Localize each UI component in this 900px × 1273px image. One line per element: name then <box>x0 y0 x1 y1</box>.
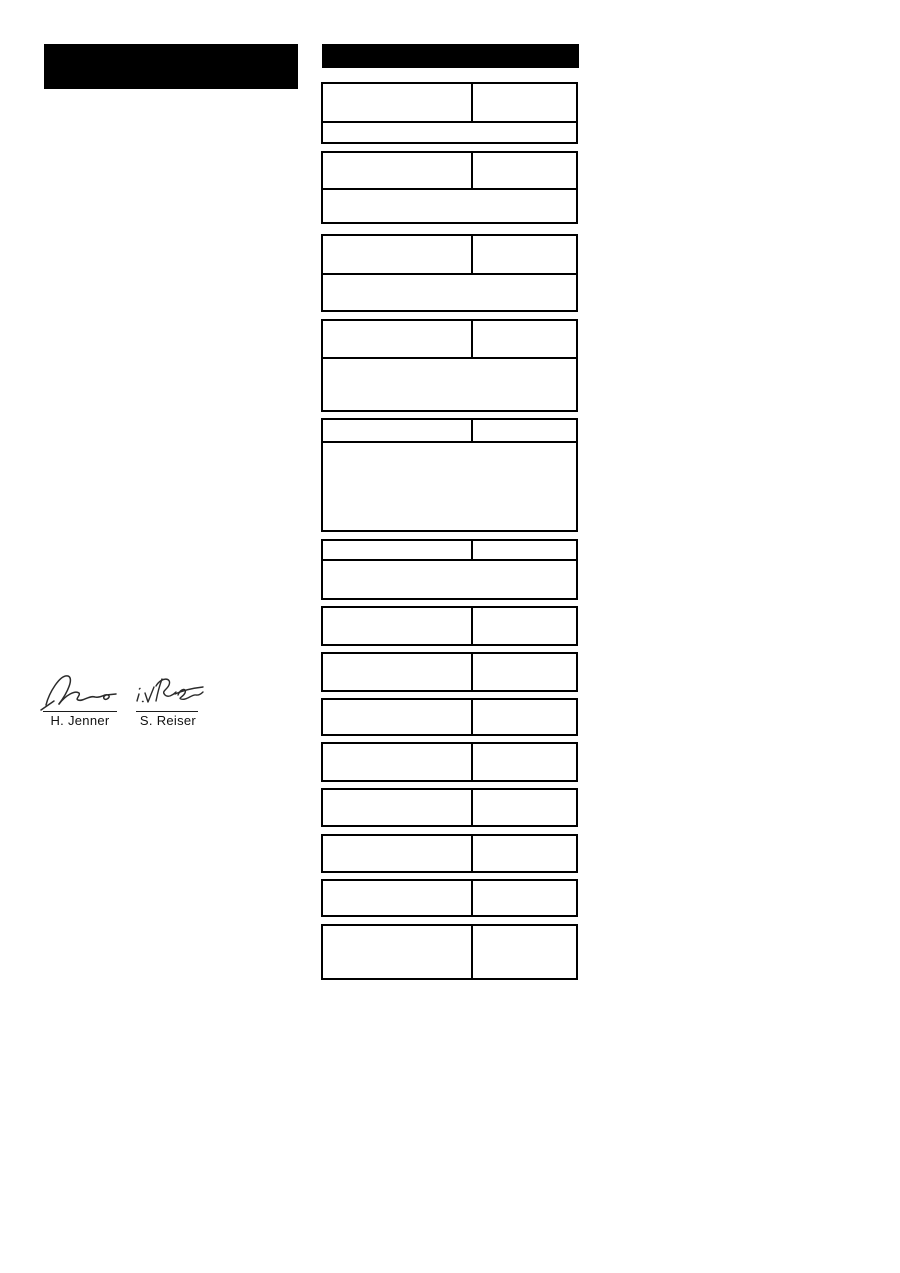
table-cell-right <box>473 926 576 978</box>
table-cell-left <box>323 420 473 441</box>
table-row-split <box>323 153 576 188</box>
table-cell-right <box>473 790 576 825</box>
table-cell-right <box>473 881 576 915</box>
table-box <box>321 539 578 600</box>
table-row-split <box>323 321 576 357</box>
table-box <box>321 418 578 532</box>
table-box <box>321 879 578 917</box>
table-cell-right <box>473 153 576 188</box>
table-row-split <box>323 790 576 825</box>
document-page: H. Jenner S. Reiser <box>0 0 900 1273</box>
table-cell-left <box>323 84 473 121</box>
table-row-split <box>323 744 576 780</box>
table-box <box>321 234 578 312</box>
signature-block-reiser: S. Reiser <box>132 669 204 728</box>
table-row-full <box>323 188 576 222</box>
table-cell-left <box>323 744 473 780</box>
table-row-split <box>323 926 576 978</box>
table-cell-left <box>323 700 473 734</box>
table-cell-right <box>473 420 576 441</box>
table-row-split <box>323 836 576 871</box>
table-cell-left <box>323 881 473 915</box>
table-cell-left <box>323 541 473 559</box>
table-row-split <box>323 881 576 915</box>
table-box <box>321 698 578 736</box>
table-cell-right <box>473 541 576 559</box>
signature-name-jenner: H. Jenner <box>40 713 120 728</box>
table-box <box>321 151 578 224</box>
table-row-split <box>323 236 576 273</box>
table-box <box>321 82 578 144</box>
table-box <box>321 652 578 692</box>
table-row-full <box>323 441 576 530</box>
table-row-full <box>323 273 576 310</box>
table-box <box>321 924 578 980</box>
handwritten-signature-jenner-icon <box>40 669 120 711</box>
table-cell-left <box>323 790 473 825</box>
table-cell-left <box>323 153 473 188</box>
table-cell-right <box>473 236 576 273</box>
table-row-full <box>323 357 576 410</box>
table-cell-right <box>473 84 576 121</box>
table-row-split <box>323 84 576 121</box>
table-row-split <box>323 608 576 644</box>
redacted-table-header <box>322 44 579 68</box>
table-cell-right <box>473 608 576 644</box>
table-row-split <box>323 541 576 559</box>
signature-name-reiser: S. Reiser <box>132 713 204 728</box>
handwritten-signature-reiser-icon <box>132 669 204 711</box>
table-box <box>321 788 578 827</box>
table-cell-left <box>323 236 473 273</box>
table-row-full <box>323 121 576 142</box>
signature-line-reiser <box>136 711 198 712</box>
table-cell-left <box>323 321 473 357</box>
table-row-split <box>323 654 576 690</box>
table-cell-right <box>473 654 576 690</box>
table-row-split <box>323 420 576 441</box>
table-box <box>321 606 578 646</box>
table-box <box>321 834 578 873</box>
table-cell-right <box>473 700 576 734</box>
redacted-title-block <box>44 44 298 89</box>
table-cell-right <box>473 836 576 871</box>
table-row-split <box>323 700 576 734</box>
signature-block-jenner: H. Jenner <box>40 669 120 728</box>
table-cell-left <box>323 608 473 644</box>
table-cell-right <box>473 321 576 357</box>
table-box <box>321 742 578 782</box>
table-cell-left <box>323 654 473 690</box>
signature-line-jenner <box>43 711 117 712</box>
table-cell-left <box>323 926 473 978</box>
table-cell-left <box>323 836 473 871</box>
table-cell-right <box>473 744 576 780</box>
table-box <box>321 319 578 412</box>
table-row-full <box>323 559 576 598</box>
